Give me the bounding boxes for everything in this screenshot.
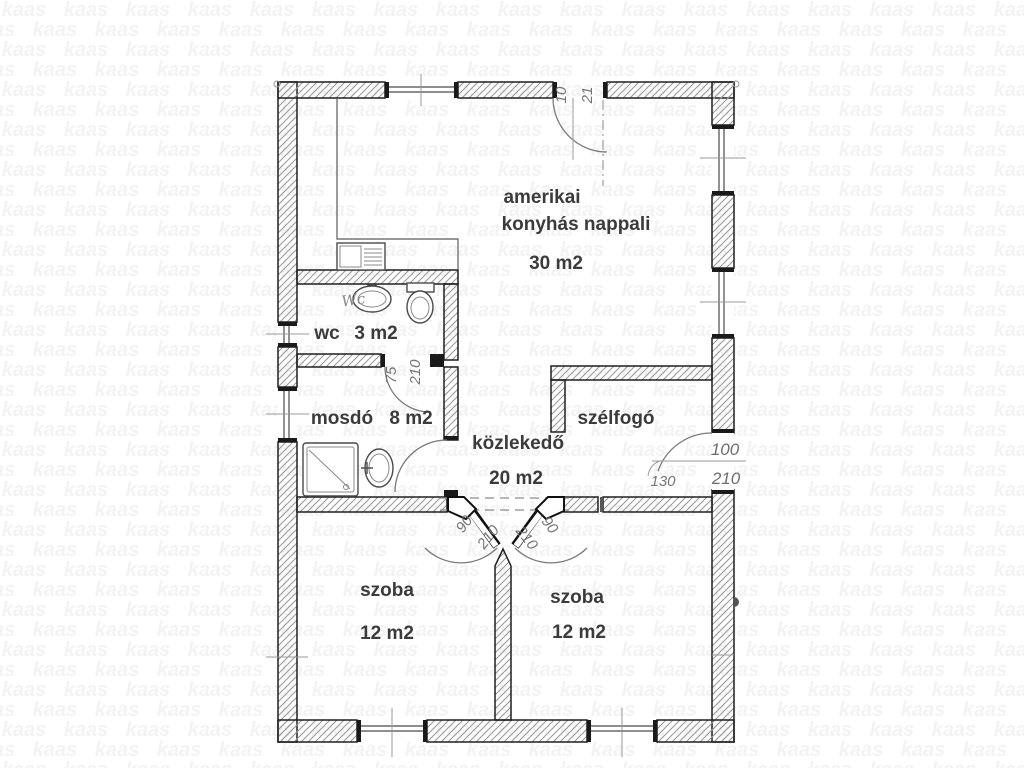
window-jamb (712, 191, 734, 195)
window-jamb (712, 334, 734, 338)
window-jamb (278, 387, 297, 391)
wall-segment (278, 82, 385, 98)
area-label-room-left: 12 m2 (360, 623, 414, 644)
dim-entry-door-width: 100 (711, 440, 740, 459)
area-label-wc: 3 m2 (354, 323, 397, 344)
window-jamb (278, 343, 297, 347)
wall-segment (712, 490, 734, 742)
shower-icon (303, 443, 358, 496)
washbasin-label: Wc (340, 289, 367, 310)
window-jamb (278, 322, 297, 326)
wall-kitchen-wc (297, 270, 458, 284)
window-jamb (653, 720, 657, 742)
door-jamb (430, 354, 444, 367)
door-jamb (603, 82, 607, 98)
room-label-living-line2: konyhás nappali (502, 214, 651, 235)
wall-segment (712, 82, 734, 125)
wall-entry-leg (551, 380, 565, 432)
room-label-hall: közlekedő (472, 433, 564, 454)
dim-top-door-height: 21 (579, 87, 596, 105)
area-label-room-right: 12 m2 (552, 622, 606, 643)
wall-segment (278, 82, 297, 322)
room-label-entry: szélfogó (577, 408, 654, 429)
area-label-living: 30 m2 (529, 253, 583, 274)
dim-entry-door-height: 210 (711, 469, 741, 488)
room-label-bath: mosdó (311, 408, 373, 429)
wall-segment (278, 442, 297, 742)
wall-room-divider (495, 549, 511, 720)
window-jamb (712, 125, 734, 129)
door-jamb (712, 490, 734, 494)
wall-segment (427, 720, 587, 742)
area-label-hall: 20 m2 (489, 468, 543, 489)
window-jamb (357, 720, 361, 742)
wall-segment (278, 347, 297, 387)
door-jamb (381, 354, 385, 367)
window-jamb (423, 720, 427, 742)
wall-segment (657, 720, 734, 742)
window-opening (712, 268, 734, 338)
dim-top-door-width: 10 (553, 86, 570, 103)
window-jamb (385, 82, 389, 98)
area-label-bath: 8 m2 (389, 408, 432, 429)
watermark-layer (0, 0, 1024, 768)
stove-icon (337, 243, 385, 270)
room-label-living-line1: amerikai (503, 187, 580, 208)
floor-plan-page: kaas kaas kaas kaas kaas (0, 0, 1024, 768)
wall-segment (278, 720, 357, 742)
wall-hall-rooms-left (297, 497, 447, 512)
room-label-room-left: szoba (360, 580, 414, 601)
floor-plan-drawing: kaas kaas kaas kaas kaas (0, 0, 1024, 768)
dim-entry-side: 130 (650, 473, 676, 490)
window-opening (712, 125, 734, 195)
wall-hall-rooms-mid (564, 497, 598, 512)
room-label-room-right: szoba (550, 587, 604, 608)
dim-wc-door-width: 75 (383, 366, 400, 383)
door-jamb (712, 429, 734, 433)
wall-entry-top (551, 366, 712, 380)
window-jamb (278, 438, 297, 442)
window-jamb (712, 268, 734, 272)
wall-wc-bath (297, 354, 381, 367)
wall-hall-rooms-right (603, 497, 712, 512)
dim-wc-door-height: 210 (407, 359, 424, 386)
room-label-wc: wc (313, 323, 340, 344)
window-jamb (587, 720, 591, 742)
wall-wc-right (444, 284, 458, 360)
wall-bath-hall (444, 367, 458, 440)
wall-segment (712, 195, 734, 268)
wall-segment (712, 338, 734, 433)
window-jamb (454, 82, 458, 98)
wall-segment (458, 82, 553, 98)
toilet-icon (407, 283, 434, 323)
